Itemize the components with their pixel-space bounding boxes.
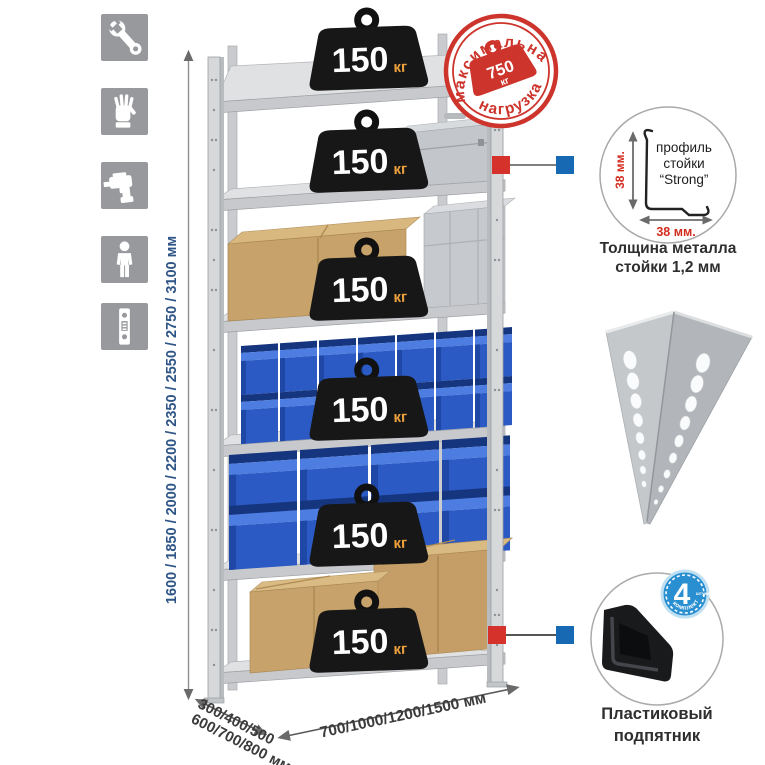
profile-callout-connector: [492, 156, 574, 174]
red-marker: [488, 626, 506, 644]
profile-dim-vertical: 38 мм.: [613, 151, 627, 189]
shelf-load-unit: кг: [393, 289, 407, 306]
shelf-load-value: 150: [331, 270, 389, 310]
shelf-load-unit: кг: [393, 641, 407, 658]
shelving-rack-illustration: 1600 / 1850 / 2000 / 2200 / 2350 / 2550 …: [0, 0, 765, 765]
foot-detail-circle: 4 штуки в комплекте: [591, 571, 723, 705]
profile-label-line1: профиль: [656, 140, 712, 155]
shelf-load-unit: кг: [393, 535, 407, 552]
shelf-load-badge: 150 кг: [307, 111, 428, 193]
shelf-load-value: 150: [331, 142, 389, 182]
quantity-badge: 4 штуки в комплекте: [662, 571, 710, 617]
red-marker: [492, 156, 510, 174]
shelf-load-unit: кг: [393, 409, 407, 426]
foot-caption-line2: подпятник: [614, 727, 701, 745]
width-dimensions-label: 700/1000/1200/1500 мм: [318, 690, 487, 742]
quantity-badge-unit: штуки: [696, 591, 710, 596]
blue-marker: [556, 156, 574, 174]
shelf-load-value: 150: [331, 516, 389, 556]
profile-caption-line2: стойки 1,2 мм: [615, 259, 720, 276]
max-load-stamp: максимальная нагрузка 750 кг: [429, 1, 572, 143]
profile-label-line3: “Strong”: [660, 172, 709, 187]
blue-marker: [556, 626, 574, 644]
shelf-load-unit: кг: [393, 59, 407, 76]
profile-detail-circle: 38 мм. 38 мм. профиль стойки “Strong”: [600, 107, 736, 243]
shelf-load-value: 150: [331, 40, 389, 80]
shelf-load-unit: кг: [393, 161, 407, 178]
angle-post-image: [606, 312, 752, 524]
profile-dim-horizontal: 38 мм.: [656, 225, 695, 239]
shelf-load-badge: 150 кг: [307, 9, 428, 91]
foot-callout-connector: [488, 626, 574, 644]
profile-label-line2: стойки: [663, 156, 704, 171]
height-dimensions-label: 1600 / 1850 / 2000 / 2200 / 2350 / 2550 …: [164, 236, 180, 604]
shelf-load-value: 150: [331, 622, 389, 662]
infographic-canvas: 1600 / 1850 / 2000 / 2200 / 2350 / 2550 …: [0, 0, 765, 765]
profile-caption-line1: Толщина металла: [600, 240, 737, 257]
shelf-load-value: 150: [331, 390, 389, 430]
foot-caption-line1: Пластиковый: [601, 705, 712, 723]
